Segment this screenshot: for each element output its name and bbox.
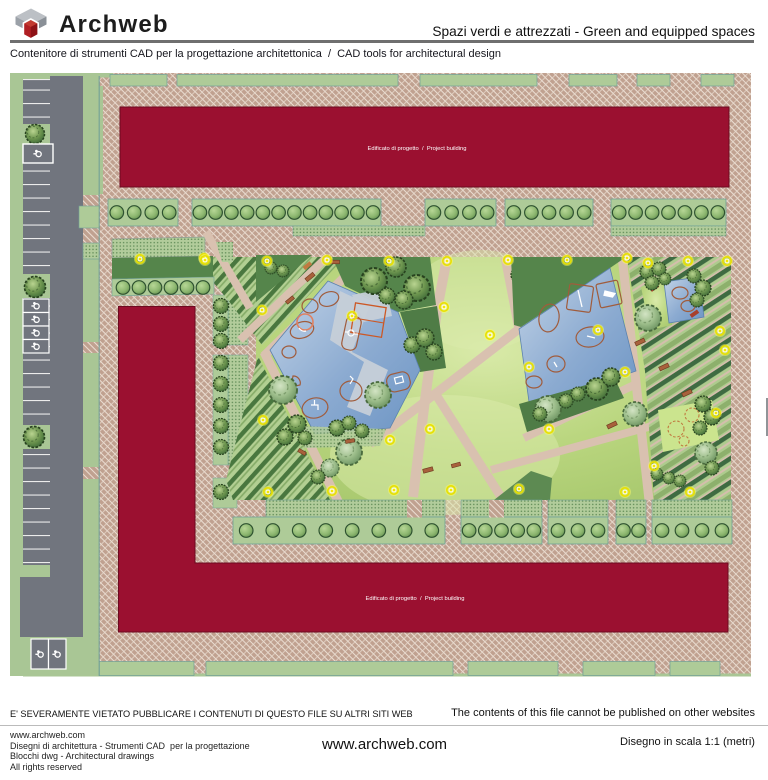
svg-text:Edificato di progetto / Proj: Edificato di progetto / Project building: [368, 146, 467, 152]
svg-text:Edificato di progetto / Proj: Edificato di progetto / Project building: [366, 596, 465, 602]
